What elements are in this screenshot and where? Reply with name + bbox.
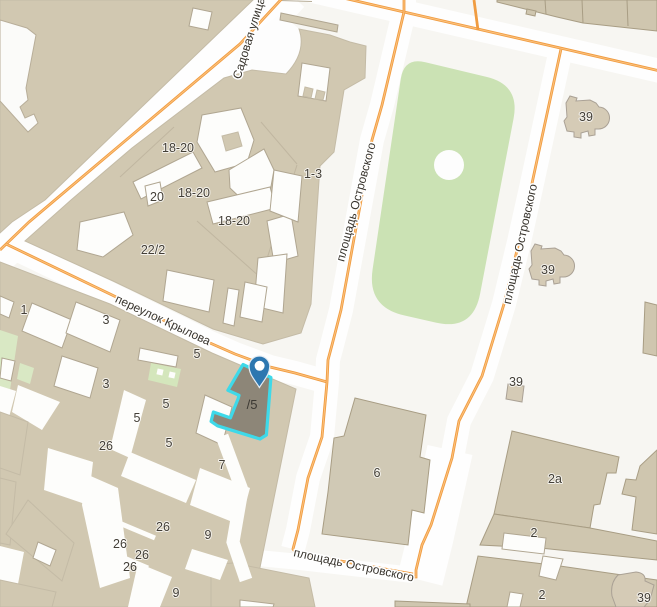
svg-text:22/2: 22/2: [141, 243, 165, 257]
svg-text:1-3: 1-3: [304, 167, 322, 181]
svg-text:26: 26: [135, 548, 149, 562]
svg-text:5: 5: [194, 347, 201, 361]
svg-text:5: 5: [134, 411, 141, 425]
svg-text:3: 3: [103, 377, 110, 391]
svg-text:39: 39: [509, 375, 523, 389]
svg-text:39: 39: [541, 263, 555, 277]
svg-text:26: 26: [113, 537, 127, 551]
svg-text:18-20: 18-20: [162, 141, 194, 155]
svg-text:5: 5: [163, 397, 170, 411]
svg-text:1: 1: [21, 303, 28, 317]
svg-text:/5: /5: [247, 397, 258, 412]
svg-text:7: 7: [219, 458, 226, 472]
svg-text:26: 26: [99, 439, 113, 453]
svg-text:9: 9: [205, 528, 212, 542]
svg-text:2: 2: [539, 588, 546, 602]
svg-text:9: 9: [173, 586, 180, 600]
svg-text:3: 3: [103, 313, 110, 327]
svg-text:18-20: 18-20: [218, 214, 250, 228]
svg-text:2: 2: [531, 526, 538, 540]
svg-text:6: 6: [374, 466, 381, 480]
svg-text:5: 5: [166, 436, 173, 450]
svg-text:2a: 2a: [548, 472, 562, 486]
svg-text:39: 39: [579, 110, 593, 124]
svg-text:39: 39: [637, 591, 651, 605]
svg-text:26: 26: [156, 520, 170, 534]
svg-text:18-20: 18-20: [178, 186, 210, 200]
svg-text:20: 20: [150, 190, 164, 204]
svg-text:26: 26: [123, 560, 137, 574]
